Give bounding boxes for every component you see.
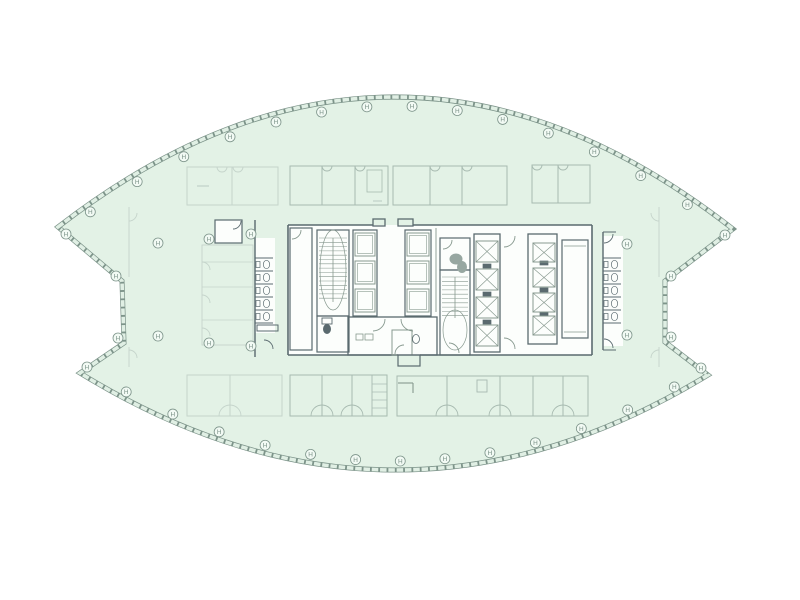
- column-marker-label: H: [638, 172, 643, 180]
- column-marker-label: H: [181, 153, 186, 161]
- column-marker-label: H: [274, 118, 279, 126]
- column-marker-label: H: [64, 230, 69, 238]
- core-room: [540, 288, 548, 292]
- column-marker-label: H: [699, 364, 704, 372]
- column-marker-label: H: [685, 201, 690, 209]
- column-marker-label: H: [114, 272, 119, 280]
- column-marker-label: H: [88, 208, 93, 216]
- core-room: [483, 292, 491, 296]
- column-marker-label: H: [217, 428, 222, 436]
- column-marker-label: H: [228, 133, 233, 141]
- column-marker-label: H: [672, 383, 677, 391]
- core-floor: [255, 238, 275, 333]
- column-marker-label: H: [249, 230, 254, 238]
- column-marker-label: H: [625, 406, 630, 414]
- core-floor: [603, 236, 623, 346]
- column-marker-label: H: [500, 116, 505, 124]
- column-marker-label: H: [625, 240, 630, 248]
- column-marker-label: H: [249, 342, 254, 350]
- column-marker-label: H: [455, 107, 460, 115]
- column-marker-label: H: [308, 451, 313, 459]
- core-room: [483, 264, 491, 268]
- column-marker-label: H: [546, 129, 551, 137]
- column-marker-label: H: [124, 388, 129, 396]
- column-marker-label: H: [723, 231, 728, 239]
- fixture: [457, 261, 467, 273]
- column-marker-label: H: [592, 148, 597, 156]
- column-marker-label: H: [669, 272, 674, 280]
- column-marker-label: H: [319, 108, 324, 116]
- column-marker-label: H: [487, 449, 492, 457]
- floor-plan-page: HHHHHHHHHHHHHHHHHHHHHHHHHHHHHHHHHHHHHHHH…: [0, 0, 800, 600]
- core-room: [540, 312, 548, 316]
- column-marker-label: H: [533, 439, 538, 447]
- column-marker-label: H: [263, 442, 268, 450]
- column-marker-label: H: [579, 425, 584, 433]
- floor-plan-canvas: HHHHHHHHHHHHHHHHHHHHHHHHHHHHHHHHHHHHHHHH…: [0, 0, 800, 600]
- column-marker-label: H: [410, 103, 415, 111]
- column-marker-label: H: [364, 103, 369, 111]
- column-marker-label: H: [207, 235, 212, 243]
- column-marker-label: H: [207, 339, 212, 347]
- fixture: [323, 324, 331, 334]
- column-marker-label: H: [625, 331, 630, 339]
- core-room: [483, 320, 491, 324]
- column-marker-label: H: [135, 178, 140, 186]
- column-marker-label: H: [669, 333, 674, 341]
- column-marker-label: H: [398, 457, 403, 465]
- column-marker-label: H: [156, 332, 161, 340]
- column-marker-label: H: [85, 363, 90, 371]
- core-floor: [215, 220, 242, 243]
- column-marker-label: H: [353, 456, 358, 464]
- column-marker-label: H: [116, 334, 121, 342]
- column-marker-label: H: [442, 455, 447, 463]
- column-marker-label: H: [156, 239, 161, 247]
- column-marker-label: H: [170, 410, 175, 418]
